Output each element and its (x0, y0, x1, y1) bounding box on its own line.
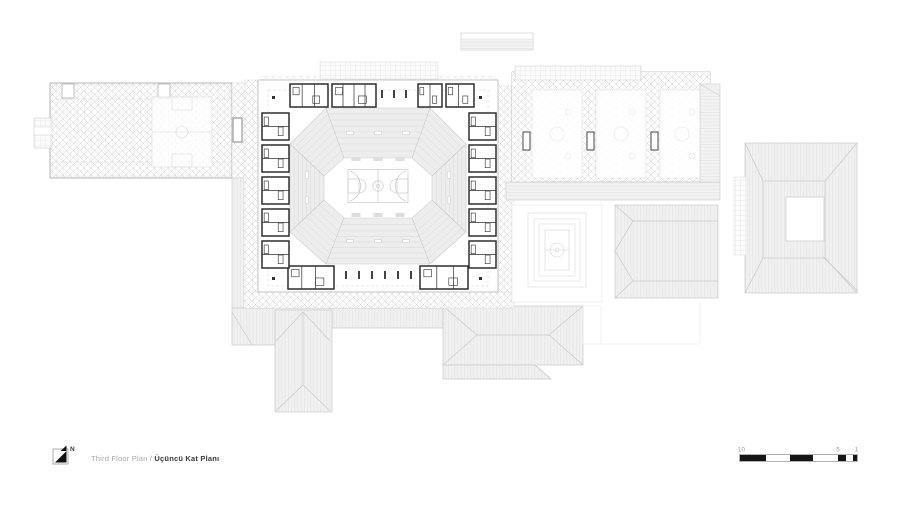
north-arrow-icon: N (52, 443, 80, 467)
basketball-court (348, 170, 408, 203)
left-wing-building (34, 83, 246, 178)
training-hall-south-eave (506, 182, 720, 200)
footprint-outline (583, 302, 700, 344)
south-wing-roof (275, 310, 332, 412)
column-tick (405, 90, 407, 98)
floor-edge-block (396, 157, 405, 161)
left-wing-notch (158, 84, 170, 98)
arena-bottom-lattice (244, 292, 514, 308)
scale-segment (838, 455, 846, 461)
vomitory-mark (347, 240, 354, 243)
truss-strip (646, 72, 660, 182)
left-wing-notch (62, 84, 74, 98)
left-attachment-gap (34, 127, 52, 135)
rooftop-louver (461, 33, 533, 50)
court-door (523, 132, 530, 150)
vomitory-mark (347, 132, 354, 135)
vomitory-mark (403, 132, 410, 135)
arena-rooms-right (469, 113, 496, 268)
floor-plan-drawing: 10 5 1 (0, 0, 900, 508)
truss-strip (512, 72, 532, 182)
floor-edge-block (352, 157, 361, 161)
column-tick (371, 271, 373, 279)
vomitory-mark (448, 197, 451, 204)
arena-block (244, 62, 514, 308)
vomitory-mark (448, 172, 451, 179)
training-court (523, 90, 582, 178)
corner-column (272, 277, 275, 280)
training-hall-east-eave (700, 84, 720, 182)
scale-label-1: 1 (855, 447, 859, 454)
column-tick (397, 271, 399, 279)
vomitory-mark (375, 132, 382, 135)
corner-column (479, 277, 482, 280)
vomitory-mark (306, 172, 309, 179)
court-door (651, 132, 658, 150)
junction-shaft (233, 118, 242, 142)
pavilion-west-walkway (734, 177, 747, 255)
scale-segment (853, 455, 857, 461)
floor-edge-block (374, 213, 383, 217)
column-tick (410, 271, 412, 279)
column-tick (345, 271, 347, 279)
drawing-title: Third Floor Plan / Üçüncü Kat Planı (91, 448, 219, 463)
corner-column (272, 96, 275, 99)
scale-segment (790, 455, 813, 461)
scale-segment (740, 455, 766, 461)
floor-edge-block (374, 157, 383, 161)
vomitory-mark (403, 240, 410, 243)
scale-bar: 10 5 1 (738, 447, 859, 462)
floor-plan-sheet: 10 5 1 N Third Floor Plan / Üçüncü Kat P… (0, 0, 900, 508)
column-tick (384, 271, 386, 279)
drawing-title-en: Third Floor Plan / (91, 454, 152, 463)
training-courts (523, 90, 704, 178)
vomitory-mark (375, 240, 382, 243)
corner-column (479, 96, 482, 99)
left-wing-court (152, 97, 212, 167)
column-tick (358, 271, 360, 279)
floor-edge-block (352, 213, 361, 217)
training-court (587, 90, 646, 178)
arena-top-canopy (320, 62, 438, 79)
court-door (587, 132, 594, 150)
column-tick (393, 90, 395, 98)
roof-lower-flap (443, 365, 551, 379)
floor-edge-block (396, 213, 405, 217)
scale-label-5: 5 (836, 447, 840, 454)
truss-strip (582, 72, 596, 182)
column-tick (381, 90, 383, 98)
courtyard-pavilion-roof (734, 143, 858, 293)
drawing-title-tr: Üçüncü Kat Planı (154, 454, 219, 463)
arena-rooms-left (262, 113, 289, 268)
drawing-footer: N Third Floor Plan / Üçüncü Kat Planı (52, 443, 219, 467)
training-hall-building (506, 66, 720, 200)
mid-hip-roof (615, 205, 718, 298)
scale-label-10: 10 (738, 447, 745, 454)
southeast-hip-roof (443, 306, 583, 379)
lower-roofs (232, 302, 700, 412)
north-label: N (70, 446, 75, 453)
mid-courtyard-plan (512, 205, 602, 302)
vomitory-mark (306, 197, 309, 204)
training-hall-top-canopy (515, 66, 641, 80)
